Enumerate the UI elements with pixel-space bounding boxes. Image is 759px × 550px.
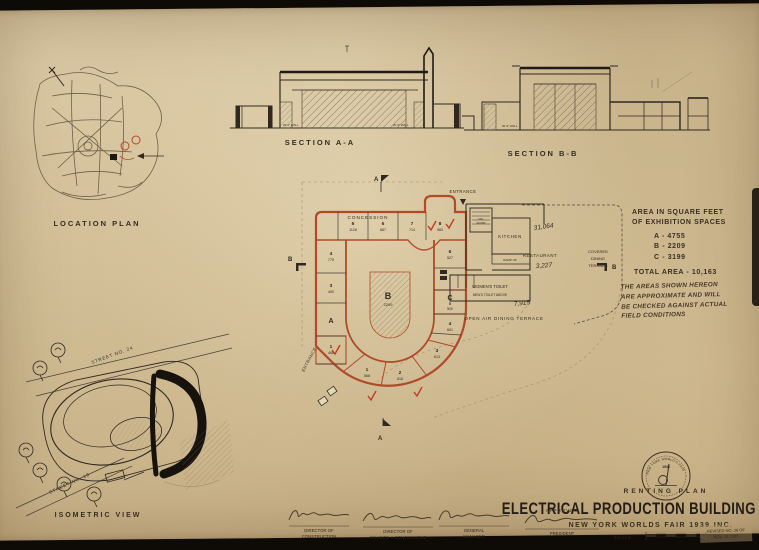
area-row-c-label: C -: [654, 253, 665, 263]
site-marker: [110, 154, 117, 160]
covered-dining-label3: TERRACE: [588, 263, 607, 268]
svg-text:568: 568: [364, 374, 370, 378]
section-marker-a-bottom: A: [378, 418, 391, 442]
scanned-drawing-sheet: LOCATION PLAN 20'-0" WALL 20'-0" WA: [0, 0, 759, 550]
renting-plan-label: RENTING PLAN: [606, 488, 726, 495]
scale-label: SCALE: [614, 535, 632, 540]
direction-arrow-icon: [137, 153, 164, 159]
entrance-turnstiles: [318, 386, 337, 406]
area-row-b-label: B -: [654, 242, 665, 252]
sig1-title-line1: DIRECTOR OF: [304, 528, 334, 533]
sig4-title-line1: PRESIDENT: [550, 531, 575, 536]
svg-text:6: 6: [449, 249, 452, 255]
svg-text:601: 601: [447, 328, 453, 332]
isometric-view-label: ISOMETRIC VIEW: [38, 512, 158, 519]
svg-text:887: 887: [380, 228, 386, 232]
location-plan-drawing: [22, 56, 170, 214]
entrance-arrow-icon: [460, 199, 466, 205]
area-row-b-value: 2209: [668, 242, 686, 252]
restaurant-label: RESTAURANT: [523, 253, 557, 258]
svg-text:775: 775: [328, 258, 334, 262]
svg-text:5: 5: [352, 221, 355, 227]
area-total: TOTAL AREA - 10,163: [634, 268, 759, 278]
svg-text:1128: 1128: [349, 228, 357, 232]
zone-a-letter: A: [328, 318, 333, 325]
section-b-detached-block: [688, 98, 708, 130]
section-a-left-wing: [236, 106, 272, 128]
section-a-main-hall: [280, 46, 428, 128]
svg-text:B: B: [288, 257, 293, 263]
zone-c-letter: C: [447, 295, 452, 302]
sig3-title-line1: GENERAL: [464, 528, 485, 533]
svg-text:7: 7: [411, 221, 414, 227]
revision-stamp: REVISED NO. 26 OF NOV. 15 1937: [698, 524, 754, 544]
svg-text:31,064: 31,064: [533, 222, 554, 232]
svg-text:8: 8: [439, 221, 442, 227]
area-table-heading2: OF EXHIBITION SPACES: [632, 218, 759, 228]
sig2-title-line1: DIRECTOR OF: [383, 529, 413, 534]
svg-text:500: 500: [447, 307, 453, 311]
area-table: AREA IN SQUARE FEET OF EXHIBITION SPACES…: [632, 208, 759, 278]
svg-text:3: 3: [436, 348, 439, 354]
svg-text:714: 714: [409, 228, 415, 232]
zone-b-letter: B: [385, 291, 392, 301]
area-row-a-value: 4755: [667, 232, 685, 242]
area-row-a-label: A -: [654, 232, 665, 242]
svg-text:1: 1: [330, 344, 333, 350]
svg-text:527: 527: [447, 256, 453, 260]
svg-text:A: A: [378, 436, 383, 442]
section-a-right-wing: [433, 104, 460, 128]
area-row-c: C - 3199: [654, 253, 759, 263]
mens-toilet-label: MEN'S TOILET ABOVE: [473, 293, 508, 297]
entrance-bottom-label: ENTRANCE: [300, 346, 317, 372]
svg-text:2: 2: [399, 370, 402, 376]
covered-dining-label2: DINING: [591, 256, 605, 261]
field-conditions-note: THE AREAS SHOWN HEREON ARE APPROXIMATE A…: [621, 279, 754, 321]
svg-text:613: 613: [434, 355, 440, 359]
street-top-label: STREET NO. 24: [91, 345, 134, 365]
section-marker-b-left: B: [288, 257, 306, 271]
svg-text:983: 983: [437, 228, 443, 232]
signature-rules: [289, 526, 599, 529]
covered-dining-label1: COVERED: [588, 249, 608, 254]
section-a-a-drawing: 20'-0" WALL 20'-0" WALL: [228, 42, 466, 142]
svg-text:7,915: 7,915: [513, 299, 530, 308]
photo-edge-notch: [752, 188, 759, 306]
section-marker-a-top: A: [374, 175, 389, 192]
util-room-label2: ROOM: [477, 221, 486, 225]
svg-text:400: 400: [328, 290, 334, 294]
fairground-map-lines: [34, 67, 162, 200]
svg-text:A: A: [374, 177, 379, 183]
area-row-a: A - 4755: [654, 232, 759, 242]
section-b-right-wing: [610, 72, 692, 130]
area-table-heading1: AREA IN SQUARE FEET: [632, 208, 759, 218]
section-b-b-drawing: 20'-0" WALL: [462, 58, 712, 144]
section-a-label: SECTION A-A: [275, 138, 365, 147]
renting-floor-plan: A A B B CONCESSION ENTRANCE UTIL. ROOM K…: [282, 168, 632, 448]
revision-line2: NOV. 15 1937: [713, 534, 739, 540]
svg-text:4: 4: [449, 321, 452, 327]
svg-text:616: 616: [397, 377, 403, 381]
signature-captions: DIRECTOR OF CONSTRUCTION DIRECTOR OF EXH…: [302, 508, 579, 540]
location-plan-label: LOCATION PLAN: [42, 219, 152, 228]
womens-toilet-label: WOMEN'S TOILET: [472, 284, 508, 289]
compass-arrow-icon: [49, 67, 64, 86]
svg-text:3: 3: [330, 283, 333, 289]
open-air-terrace-label: OPEN AIR DINING TERRACE: [464, 316, 543, 321]
wall-dim-label: 20'-0" WALL: [393, 123, 409, 127]
svg-text:3,227: 3,227: [536, 262, 553, 270]
kitchen-label: KITCHEN: [498, 234, 521, 239]
concession-label: CONCESSION: [348, 215, 389, 220]
svg-text:6: 6: [382, 221, 385, 227]
section-b-label: SECTION B-B: [498, 149, 588, 158]
svg-text:B: B: [612, 265, 617, 271]
wall-dim-label: 20'-0" WALL: [283, 123, 299, 127]
svg-text:5: 5: [449, 302, 451, 306]
svg-text:4: 4: [330, 251, 333, 257]
zone-b-area: 2209: [384, 302, 394, 307]
sig1-title-line2: CONSTRUCTION: [302, 534, 337, 539]
approved-label: APPROVED: [546, 508, 578, 513]
sig3-title-line2: MANAGER: [463, 534, 485, 539]
paving-hatch: [179, 420, 234, 490]
ramp-label: RAMP UP: [503, 258, 517, 262]
section-a-tower-fin: [424, 48, 433, 128]
entrance-top-label: ENTRANCE: [449, 189, 476, 194]
tree-symbols: [19, 343, 101, 507]
area-row-b: B - 2209: [654, 242, 759, 252]
svg-text:1: 1: [366, 367, 369, 373]
building-isometric: [43, 361, 234, 490]
area-row-c-value: 3199: [668, 253, 686, 263]
scale-bar-segments: [646, 532, 706, 540]
isometric-view-drawing: STREET NO. 24 STREET NO. 18: [14, 322, 234, 512]
signature-block: DIRECTOR OF CONSTRUCTION DIRECTOR OF EXH…: [283, 504, 613, 548]
wall-dim-label: 20'-0" WALL: [502, 124, 518, 128]
section-b-center-hall: [512, 66, 618, 130]
sig2-title-line2: EXHIBITS & CONCESSIONS: [370, 535, 427, 540]
